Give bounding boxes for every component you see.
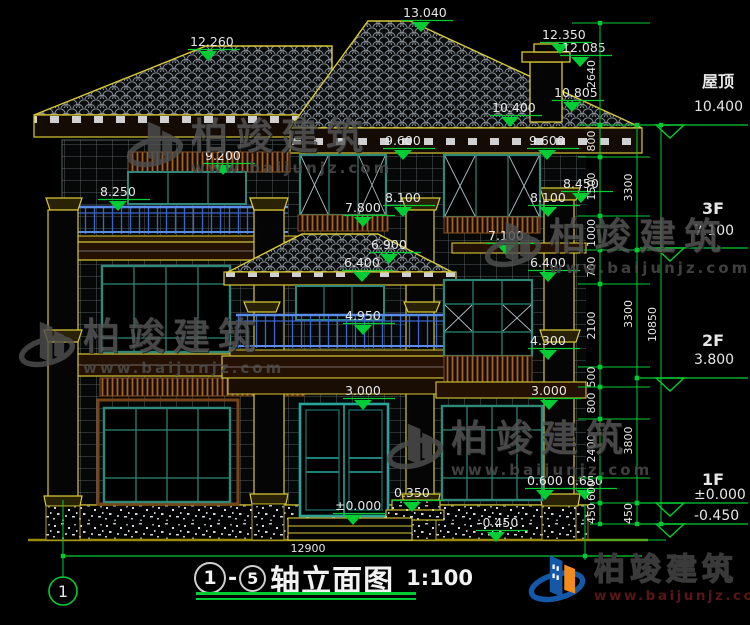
baijun-logo-icon — [528, 548, 586, 610]
svg-text:3.800: 3.800 — [694, 352, 734, 368]
svg-text:2F: 2F — [702, 331, 724, 350]
svg-text:±0.000: ±0.000 — [694, 487, 746, 503]
svg-text:4.950: 4.950 — [345, 308, 381, 323]
svg-text:700: 700 — [585, 257, 598, 278]
svg-text:3300: 3300 — [622, 174, 635, 202]
svg-text:9.600: 9.600 — [529, 133, 565, 148]
title-underline — [196, 592, 416, 595]
logo-url: www.baijunjz.com — [594, 588, 750, 604]
svg-text:13.040: 13.040 — [403, 5, 447, 20]
svg-text:450: 450 — [585, 503, 598, 524]
title-underline — [196, 598, 416, 600]
svg-text:3F: 3F — [702, 199, 724, 218]
axis-bubble-1: 1 — [49, 577, 77, 605]
svg-text:12900: 12900 — [291, 542, 326, 555]
svg-text:10850: 10850 — [646, 307, 659, 342]
svg-text:8.100: 8.100 — [530, 190, 566, 205]
svg-text:3.000: 3.000 — [345, 383, 381, 398]
svg-text:3800: 3800 — [622, 427, 635, 455]
dimension-chain: 10850 — [646, 123, 663, 526]
center-2f-balcony — [222, 286, 462, 394]
svg-text:6.400: 6.400 — [344, 255, 380, 270]
svg-text:屋顶: 屋顶 — [702, 72, 734, 91]
svg-text:2100: 2100 — [585, 312, 598, 340]
svg-text:0.600: 0.600 — [527, 473, 563, 488]
axis-bubble-start: 1 — [194, 562, 226, 594]
cad-elevation-sheet: 12.26013.04012.35012.08510.80510.4009.60… — [0, 0, 750, 625]
baijun-logo: 柏竣建筑 www.baijunjz.com — [528, 548, 750, 610]
svg-text:6.400: 6.400 — [530, 255, 566, 270]
floor-level: -0.450 — [640, 508, 748, 537]
svg-text:600: 600 — [585, 480, 598, 501]
floor-level: 3F7.100 — [640, 199, 748, 261]
svg-text:6.900: 6.900 — [371, 237, 407, 252]
svg-text:±0.000: ±0.000 — [335, 498, 381, 513]
svg-text:7.100: 7.100 — [488, 228, 524, 243]
right-wing-3f — [444, 155, 540, 233]
svg-text:3.000: 3.000 — [531, 383, 567, 398]
svg-text:1500: 1500 — [585, 173, 598, 201]
logo-name: 柏竣建筑 — [594, 554, 750, 587]
svg-text:9.200: 9.200 — [205, 148, 241, 163]
svg-text:4.300: 4.300 — [530, 333, 566, 348]
title-dash: - — [228, 566, 237, 591]
svg-text:7.100: 7.100 — [694, 223, 734, 239]
pier-left — [44, 210, 82, 540]
svg-text:800: 800 — [585, 131, 598, 152]
svg-text:12.085: 12.085 — [562, 40, 606, 55]
left-wing-1f — [98, 400, 238, 504]
svg-text:800: 800 — [585, 393, 598, 414]
slab-band-right — [452, 243, 586, 253]
svg-text:-0.450: -0.450 — [478, 515, 518, 530]
svg-text:2640: 2640 — [585, 60, 598, 88]
svg-text:500: 500 — [585, 367, 598, 388]
svg-text:1000: 1000 — [585, 219, 598, 247]
svg-text:8.100: 8.100 — [385, 190, 421, 205]
axis-bubble-end: 5 — [239, 565, 266, 592]
dimension-chain: 330033003800450 — [622, 123, 639, 526]
svg-text:1: 1 — [58, 582, 68, 601]
svg-text:9.600: 9.600 — [385, 133, 421, 148]
svg-text:12.260: 12.260 — [190, 34, 234, 49]
floor-level: 屋顶10.400 — [640, 72, 748, 138]
elevation-drawing: 12.26013.04012.35012.08510.80510.4009.60… — [0, 0, 750, 625]
svg-text:10.400: 10.400 — [694, 99, 743, 115]
left-roof — [34, 46, 332, 137]
svg-text:450: 450 — [622, 503, 635, 524]
svg-text:7.800: 7.800 — [345, 200, 381, 215]
svg-text:-0.450: -0.450 — [694, 508, 739, 524]
svg-text:10.400: 10.400 — [492, 100, 536, 115]
svg-text:0.350: 0.350 — [394, 485, 430, 500]
title-scale: 1:100 — [406, 566, 473, 590]
svg-text:8.250: 8.250 — [100, 184, 136, 199]
svg-text:2400: 2400 — [585, 435, 598, 463]
svg-text:3300: 3300 — [622, 300, 635, 328]
